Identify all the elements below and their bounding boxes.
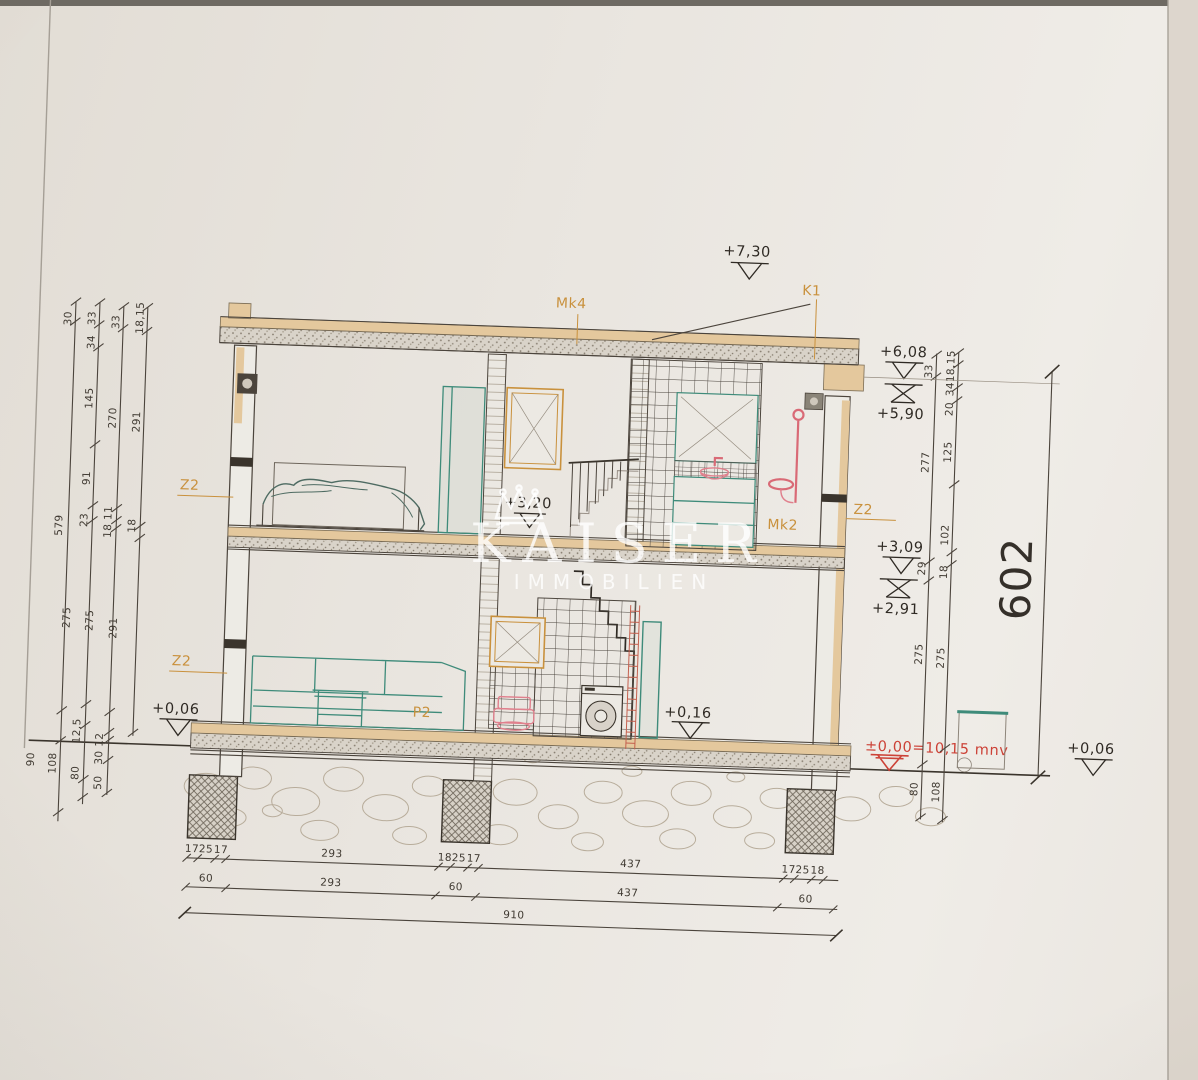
dim-label: 29: [916, 561, 928, 576]
elevation-marker-roof-edge-top: +6,08: [879, 344, 928, 380]
dim-label: 275: [935, 647, 948, 669]
dim-label: 60: [798, 893, 813, 905]
bed: [256, 462, 426, 532]
datum-label: ±0,00=10,15 mnv: [865, 738, 1009, 759]
dim-label: 275: [84, 609, 97, 631]
tag-mk4: Mk4: [556, 295, 587, 312]
dim-label: 17: [185, 843, 200, 855]
dim-label: 579: [53, 514, 66, 536]
shower-column: [768, 409, 803, 503]
paper-left-fold: [24, 0, 52, 748]
roof-edge-step-right: [823, 364, 864, 391]
elevation-marker-ground-floor: +0,16: [663, 704, 712, 739]
upstairs-window: [504, 388, 563, 470]
dim-label: 50: [92, 775, 104, 790]
left-wall-lintel-upper: [230, 457, 252, 467]
dim-label: 18: [938, 565, 950, 580]
photo-top-edge: [0, 0, 1198, 6]
elevation-marker-terrain-right: +0,06: [1066, 740, 1115, 776]
dim-label: 91: [81, 471, 93, 486]
interior-wall-upper: [482, 354, 506, 535]
roof-slab: [219, 303, 866, 391]
dim-label: 25: [795, 864, 810, 876]
elevation-label: +5,90: [877, 406, 925, 424]
overall-height-dimension: 602: [850, 358, 1061, 785]
dim-label: 60: [449, 881, 464, 893]
dim-label: 18,15: [945, 350, 958, 382]
elevation-marker-roof: +7,30: [722, 243, 771, 280]
bottom-dimension-rows: 17 25 17 293 18 25 17 437 17 25 18 60 29…: [179, 843, 845, 942]
tag-p2: P2: [412, 705, 431, 722]
shower-soap-dish: [769, 479, 793, 490]
footing-right: [785, 789, 835, 855]
dim-label: 17: [214, 844, 229, 856]
elevation-label: +0,16: [664, 704, 712, 722]
elevation-marker-upper-slab-bottom: +2,91: [872, 579, 921, 619]
downstairs-window: [490, 616, 546, 668]
dim-label: 275: [61, 607, 74, 629]
tag-k1: K1: [802, 283, 822, 300]
dim-label: 18 11: [102, 506, 115, 538]
dim-label: 34: [85, 335, 97, 350]
dim-label: 910: [503, 909, 525, 922]
dim-label: 34: [944, 382, 956, 397]
elevation-label: +3,09: [876, 539, 924, 557]
dim-label: 33: [110, 315, 122, 330]
glass-door: [639, 622, 661, 739]
paper-right-margin: [1168, 0, 1198, 1080]
dim-label: 18: [810, 865, 825, 877]
dim-label: 33: [86, 311, 98, 326]
dim-label: 18: [126, 518, 138, 533]
washing-machine: [580, 685, 623, 736]
dim-label: 293: [320, 876, 342, 889]
dim-label: 437: [620, 858, 642, 871]
roof-parapet-left: [229, 303, 252, 319]
dim-label: 102: [939, 524, 952, 546]
tag-z2-right: Z2: [853, 502, 873, 519]
elevation-label: +7,30: [723, 243, 771, 261]
footing-left: [187, 775, 237, 840]
dim-label: 90: [25, 752, 37, 767]
dim-label: 18: [438, 852, 453, 864]
dim-label: 80: [908, 782, 920, 797]
dim-label: 30 12: [93, 732, 106, 764]
dim-label: 80: [69, 766, 81, 781]
dim-label: 18,15: [134, 302, 147, 334]
footing-middle: [441, 780, 491, 844]
dim-label: 17: [467, 853, 482, 865]
dim-label: 437: [617, 887, 639, 900]
tilted-paper-content: Mk4 K1 Z2 Z2 Z2 Mk2 P2 +7,30 +6,08 +5,90…: [19, 0, 1141, 951]
dim-label: 108: [930, 781, 943, 803]
elevation-label: +0,06: [1067, 740, 1115, 758]
dim-label: 33: [923, 364, 935, 379]
elevation-label: +0,06: [152, 700, 200, 718]
tag-mk2: Mk2: [767, 517, 798, 534]
left-wall-lintel-lower: [224, 639, 246, 649]
elevation-label: +6,08: [880, 344, 928, 362]
dim-label: 30: [62, 311, 74, 326]
right-wall-lintel: [821, 494, 846, 503]
scanned-blueprint-photo: Mk4 K1 Z2 Z2 Z2 Mk2 P2 +7,30 +6,08 +5,90…: [0, 0, 1198, 1080]
tag-z2-upper-left: Z2: [180, 477, 200, 494]
left-dimension-chains: 30 33 33 18,15 34 145 270 291 91 579 23 …: [23, 296, 153, 824]
dim-label: 60: [199, 872, 214, 884]
dim-label: 17: [781, 864, 796, 876]
dim-label: 108: [47, 752, 60, 774]
tag-z2-lower-left: Z2: [171, 653, 191, 670]
dim-label: 293: [321, 847, 343, 860]
dim-label: 275: [913, 643, 926, 665]
elevation-label: +2,91: [872, 601, 920, 619]
watermark-subtitle: IMMOBILIEN: [514, 570, 714, 594]
elevation-marker-roof-edge-bottom: +5,90: [877, 384, 926, 424]
dim-label: 20: [944, 402, 956, 417]
dim-label: 277: [920, 451, 933, 473]
dim-label: 125: [942, 441, 955, 463]
dim-label: 25: [199, 843, 214, 855]
dim-label: 291: [107, 617, 120, 639]
dim-label: 25: [452, 852, 467, 864]
dim-label: 291: [130, 411, 143, 433]
dim-label: 12,5: [71, 718, 84, 743]
cross-section-drawing: Mk4 K1 Z2 Z2 Z2 Mk2 P2 +7,30 +6,08 +5,90…: [0, 0, 1198, 1080]
dim-label: 270: [107, 407, 120, 429]
overall-height-label: 602: [990, 536, 1042, 621]
watermark-title: KAISER: [470, 512, 770, 575]
dim-label: 23: [78, 513, 90, 528]
dim-label: 145: [83, 387, 96, 409]
sofa: [250, 656, 465, 730]
